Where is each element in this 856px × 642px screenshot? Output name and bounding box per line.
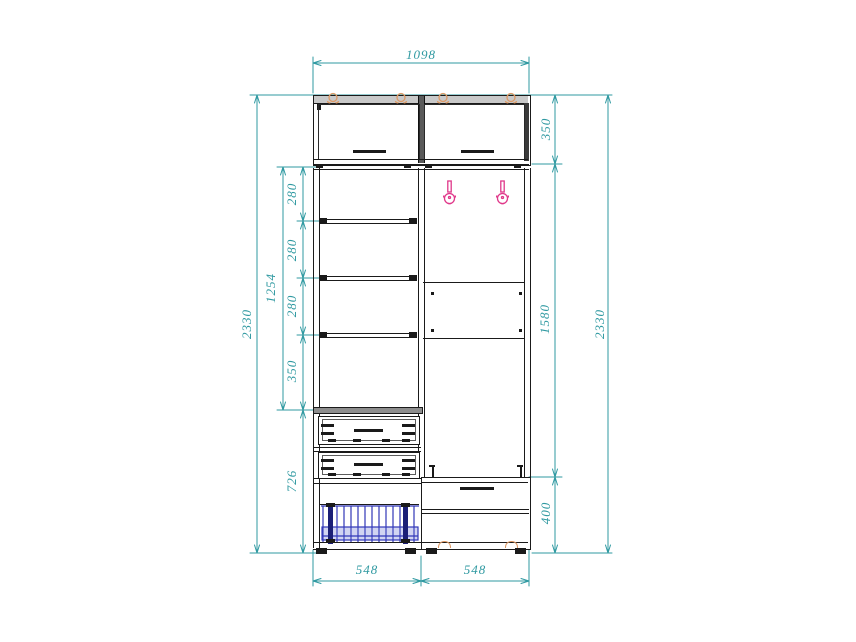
bench-mid-rail <box>421 509 529 514</box>
drawer-bottom-pin <box>382 473 390 476</box>
dimension-label-height-left: 2330 <box>240 304 254 344</box>
bench-peg-cap <box>429 465 435 467</box>
drawer-handle <box>354 429 383 432</box>
screw-dot <box>519 292 522 295</box>
drawer-bottom-pin <box>402 439 410 442</box>
dimension-label-gap4: 350 <box>285 351 299 391</box>
foot <box>316 548 327 554</box>
drawer-slide-rail <box>402 424 415 427</box>
shelf-end-cap <box>319 332 327 338</box>
drawer-slide-rail <box>402 459 415 462</box>
drawer-bottom-pin <box>402 473 410 476</box>
foot <box>426 548 437 554</box>
shelf-pin <box>425 165 432 168</box>
drawer-slide-rail <box>321 432 334 435</box>
shelf-end-cap <box>319 275 327 281</box>
drawer-bottom-pin <box>328 439 336 442</box>
dimension-label-shelf-column: 1254 <box>264 268 278 308</box>
coat-hook-icon <box>496 180 509 208</box>
dimension-label-lower-column: 726 <box>285 461 299 501</box>
hinge-icon <box>503 92 519 105</box>
drawer-slide-rail <box>321 467 334 470</box>
drawer-slide-rail <box>402 467 415 470</box>
shelf-end-cap <box>409 218 417 224</box>
hinge-icon <box>325 92 341 105</box>
shelf <box>319 276 417 281</box>
shelf-pin <box>404 165 411 168</box>
dimension-label-gap3: 280 <box>285 286 299 326</box>
drawing-canvas: 1098 2330 1254 280 280 280 350 726 350 1… <box>0 0 856 642</box>
dimension-label-bottom-section: 400 <box>539 493 553 533</box>
coat-hook-icon <box>443 180 456 208</box>
bench-top-inner-line <box>422 482 528 483</box>
dimension-label-middle-section: 1580 <box>538 299 552 339</box>
dimension-label-width-top: 1098 <box>401 48 441 62</box>
screw-dot <box>431 292 434 295</box>
left-door-handle <box>353 150 386 153</box>
dimension-label-base-right: 548 <box>455 563 495 577</box>
dimension-label-top-section: 350 <box>539 109 553 149</box>
shelf-end-cap <box>319 218 327 224</box>
screw-dot <box>519 329 522 332</box>
dimension-label-gap2: 280 <box>285 230 299 270</box>
drawer-slide-rail <box>321 459 334 462</box>
top-cabinet-bottom-line <box>314 159 528 160</box>
drawer-bottom-pin <box>382 439 390 442</box>
shoe-rack-post-cap <box>401 503 410 507</box>
dimension-label-base-left: 548 <box>347 563 387 577</box>
hinge-icon <box>505 541 518 548</box>
back-panel-line <box>423 338 524 339</box>
drawer-box-bottom <box>313 478 421 484</box>
hinge-icon <box>438 541 451 548</box>
shoe-rack-post-cap <box>326 503 335 507</box>
screw-dot <box>431 329 434 332</box>
dimension-label-gap1: 280 <box>285 174 299 214</box>
shelf-end-cap <box>409 332 417 338</box>
drawer-slide-rail <box>402 432 415 435</box>
bench-drawer-handle <box>460 487 494 490</box>
left-side-panel <box>313 168 320 548</box>
hinge-icon <box>393 92 409 105</box>
drawer-handle <box>354 463 383 466</box>
drawer-bottom-pin <box>328 473 336 476</box>
hinge-icon <box>435 92 451 105</box>
shelf-end-cap <box>409 275 417 281</box>
drawer-bottom-pin <box>353 439 361 442</box>
back-panel-line <box>423 282 524 283</box>
drawer-bottom-pin <box>353 473 361 476</box>
right-door-handle <box>461 150 494 153</box>
shelf-section-bottom <box>313 407 423 414</box>
bench-peg-cap <box>517 465 523 467</box>
dimension-label-height-right: 2330 <box>593 304 607 344</box>
foot <box>515 548 526 554</box>
shelf-pin <box>514 165 521 168</box>
shelf <box>319 219 417 224</box>
shelf <box>319 333 417 338</box>
foot <box>405 548 416 554</box>
drawer-slide-rail <box>321 424 334 427</box>
